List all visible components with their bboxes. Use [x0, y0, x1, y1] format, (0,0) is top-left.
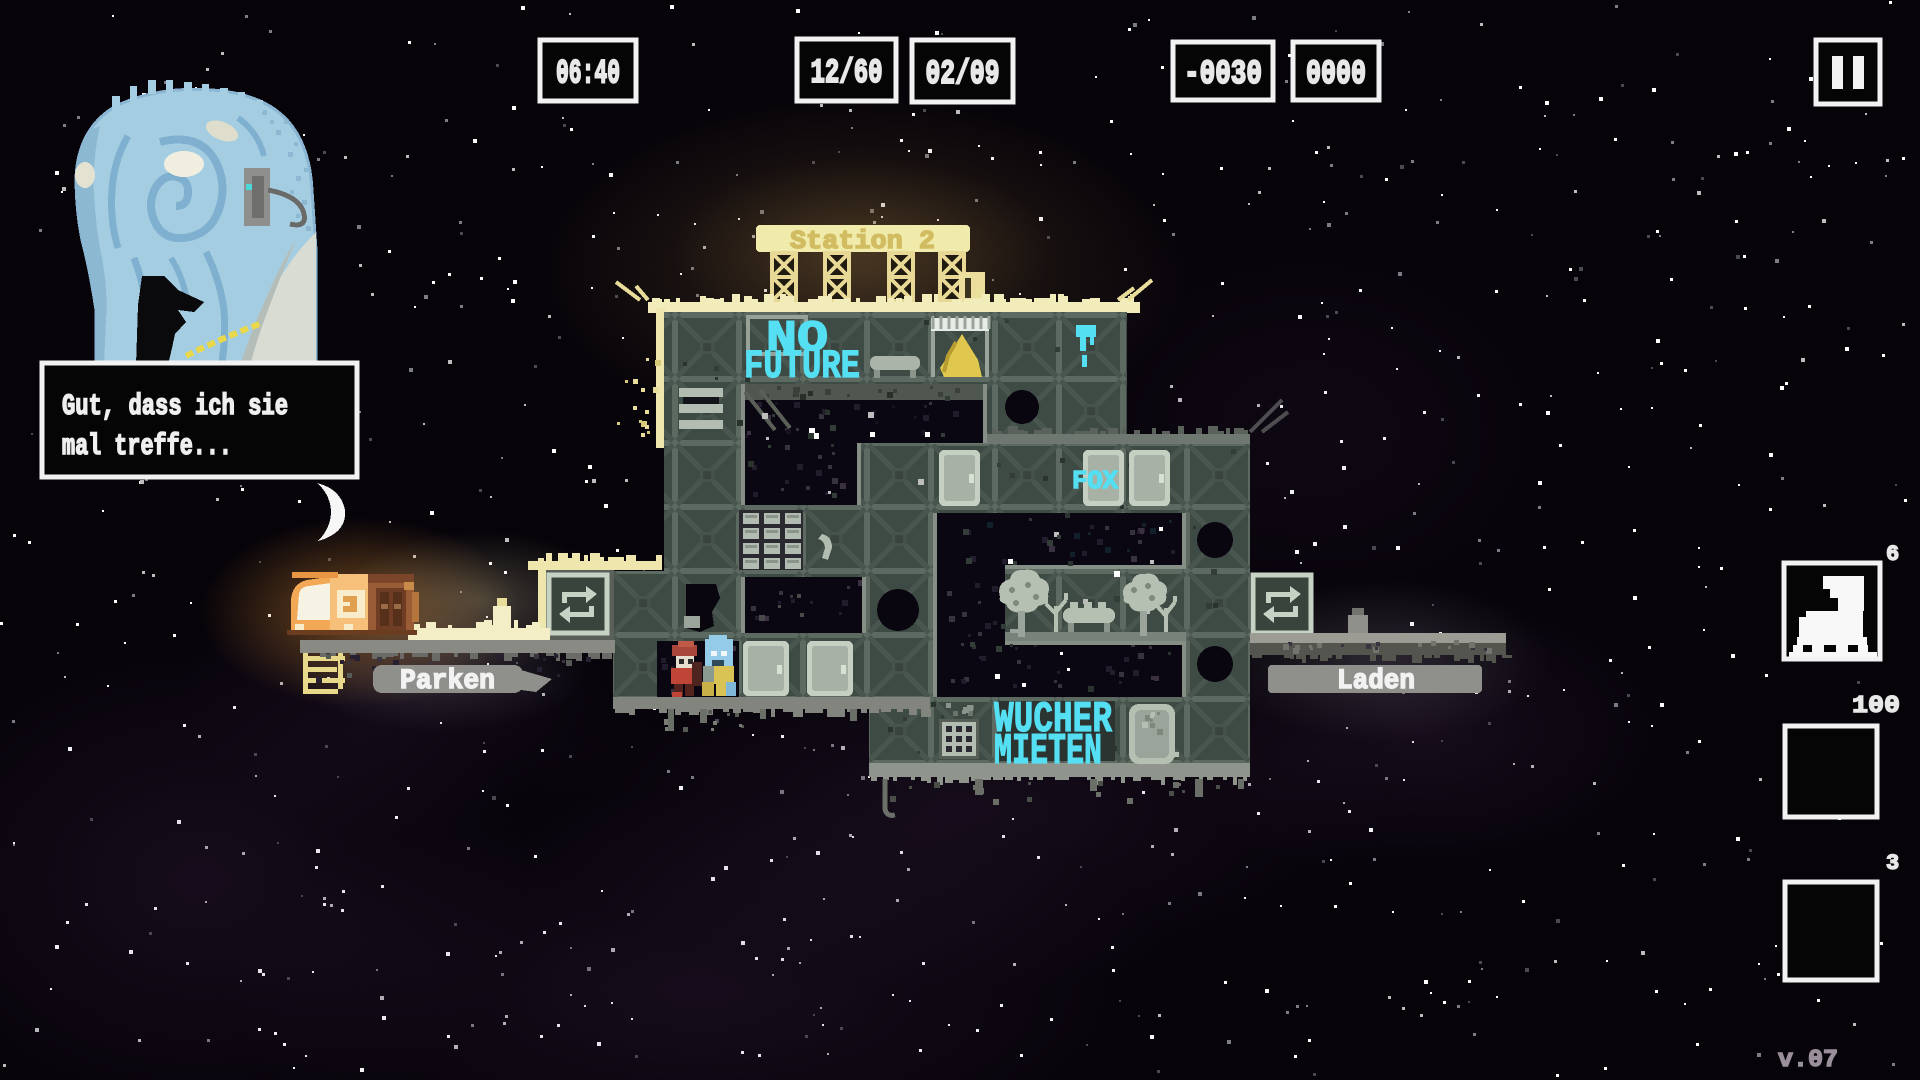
- svg-text:v.07: v.07: [1778, 1047, 1838, 1074]
- svg-text:MIETEN: MIETEN: [994, 727, 1102, 777]
- svg-text:FUTURE: FUTURE: [744, 345, 860, 390]
- svg-text:mal treffe...: mal treffe...: [62, 430, 232, 464]
- svg-text:3: 3: [1886, 851, 1899, 876]
- svg-text:6: 6: [1886, 542, 1899, 567]
- svg-text:Parken: Parken: [400, 666, 495, 697]
- svg-text:12/60: 12/60: [811, 55, 883, 93]
- svg-text:Laden: Laden: [1337, 666, 1415, 697]
- svg-text:06:40: 06:40: [556, 56, 620, 94]
- svg-text:100: 100: [1852, 693, 1900, 720]
- svg-text:0000: 0000: [1306, 56, 1366, 94]
- svg-text:FOX: FOX: [1072, 466, 1118, 496]
- svg-text:02/09: 02/09: [926, 56, 1000, 94]
- svg-text:-0030: -0030: [1184, 56, 1262, 94]
- svg-text:Gut, dass ich sie: Gut, dass ich sie: [62, 390, 288, 424]
